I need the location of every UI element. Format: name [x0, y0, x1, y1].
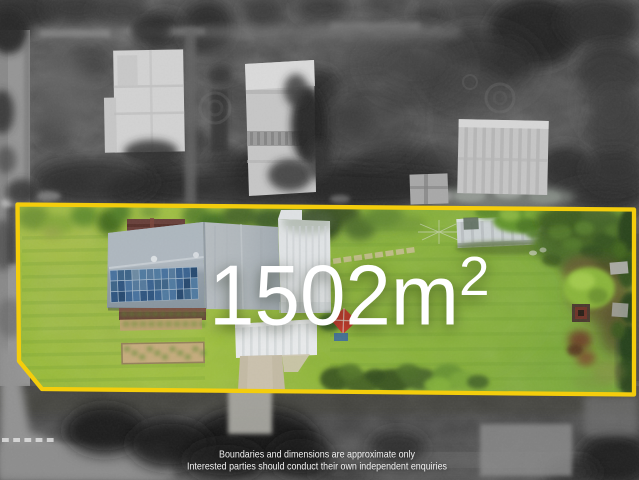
- svg-text:Interested parties should cond: Interested parties should conduct their …: [187, 461, 447, 473]
- svg-text:Boundaries and dimensions are: Boundaries and dimensions are approximat…: [219, 449, 416, 461]
- svg-text:2: 2: [459, 245, 490, 307]
- svg-text:1502m: 1502m: [209, 249, 459, 344]
